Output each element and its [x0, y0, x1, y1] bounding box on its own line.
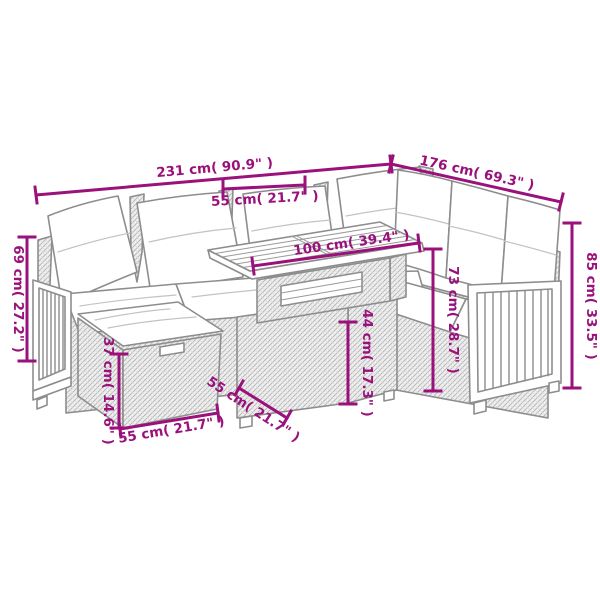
back-pillow — [48, 196, 137, 304]
dim-sofa-height-left: 69 cm( 27.2" ) — [10, 237, 35, 361]
dimension-label: 69 cm( 27.2" ) — [10, 245, 26, 353]
dim-back-height-right: 85 cm( 33.5" ) — [564, 223, 599, 388]
dimension-tick — [35, 187, 37, 203]
furniture-dimension-diagram: 231 cm( 90.9" ) 176 cm( 69.3" ) 55 cm( 2… — [0, 0, 600, 600]
arm-foot — [474, 400, 486, 414]
dimension-diagram-canvas: 231 cm( 90.9" ) 176 cm( 69.3" ) 55 cm( 2… — [0, 0, 600, 600]
dimension-tick — [559, 194, 563, 210]
dimension-label: 44 cm( 17.3" ) — [359, 309, 375, 417]
dim-seat-width: 55 cm( 21.7" ) — [211, 177, 319, 210]
dimension-label: 73 cm( 28.7" ) — [445, 266, 461, 374]
table-apron-right-face — [390, 254, 406, 301]
table-foot — [384, 390, 394, 401]
table-foot — [240, 416, 252, 428]
arm-foot — [549, 381, 559, 393]
dimension-label: 85 cm( 33.5" ) — [583, 252, 599, 360]
ottoman — [78, 302, 223, 428]
dimension-tick — [252, 258, 254, 274]
dimension-tick — [418, 235, 420, 251]
dimension-label: 37 cm( 14.6" ) — [100, 337, 116, 445]
